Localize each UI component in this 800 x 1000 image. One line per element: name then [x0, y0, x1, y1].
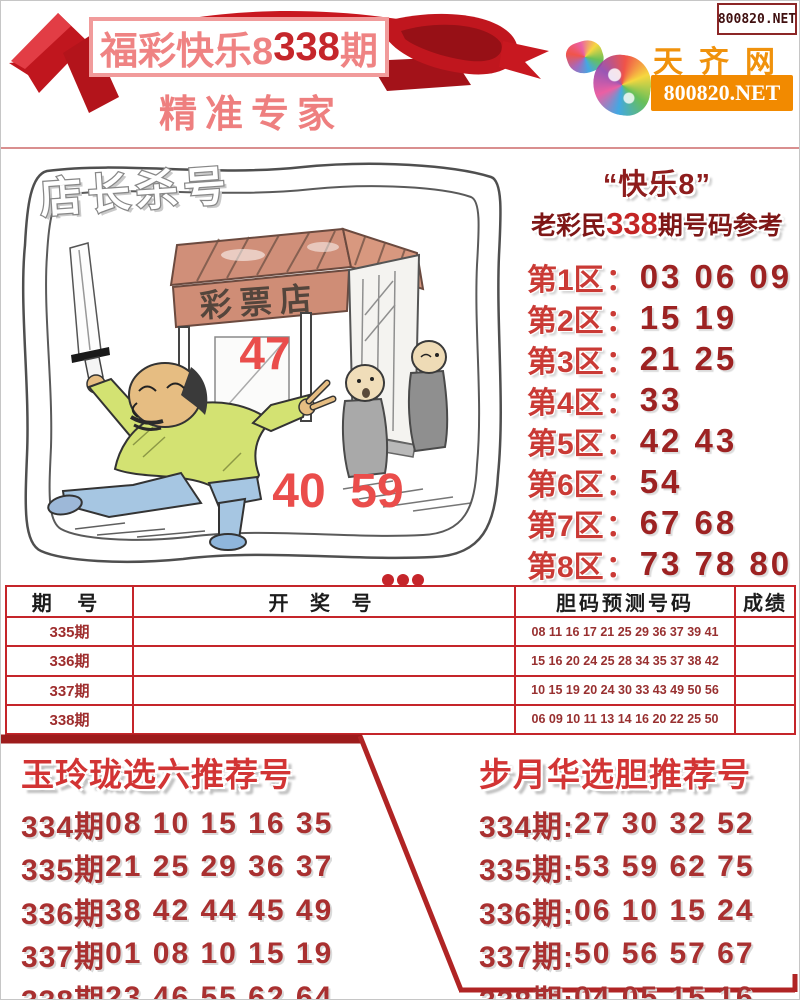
row-issue: 337期 [6, 676, 133, 705]
results-table: 期 号 开 奖 号 胆码预测号码 成绩 335期 08 11 16 17 21 … [5, 585, 796, 735]
corner-site-text: 800820.NET [718, 12, 796, 27]
recommend-row: 338期23 46 55 62 64 [21, 976, 381, 1000]
zone-colon: ： [606, 255, 636, 299]
table-row: 335期 08 11 16 17 21 25 29 36 37 39 41 [6, 617, 795, 646]
tianqi-site-url[interactable]: 800820.NET [651, 75, 793, 111]
zone-numbers: 67 68 [640, 504, 738, 542]
row-draw [133, 646, 515, 675]
recommend-right-section: 步月华选胆推荐号 334期:27 30 32 52 335期:53 59 62 … [479, 748, 799, 1000]
header-divider [1, 147, 800, 149]
row-score [735, 646, 795, 675]
recommend-issue: 337期: [479, 932, 574, 976]
zone-label: 第1区 [527, 255, 604, 299]
prediction-title-line2: 老彩民338期号码参考 [513, 206, 800, 242]
row-draw [133, 705, 515, 734]
table-row: 337期 10 15 19 20 24 30 33 43 49 50 56 [6, 676, 795, 705]
zone-label: 第5区 [527, 419, 604, 463]
cartoon-number-47: 47 [239, 327, 290, 379]
corner-site-badge[interactable]: 800820.NET [717, 3, 797, 35]
row-issue: 335期 [6, 617, 133, 646]
zone-row-5: 第5区：42 43 [527, 420, 800, 461]
zone-numbers: 54 [640, 463, 683, 501]
recommend-numbers: 06 10 15 24 [574, 894, 754, 928]
recommend-issue: 338期: [479, 976, 574, 1000]
recommend-numbers: 21 25 29 36 37 [105, 850, 333, 884]
recommend-left-title: 玉玲珑选六推荐号 [21, 748, 381, 796]
zone-numbers: 03 06 09 [640, 258, 792, 296]
cartoon-illustration: 店长杀号 店长杀号 彩票店 [13, 155, 509, 579]
red-dot [382, 574, 394, 586]
table-row: 338期 06 09 10 11 13 14 16 20 22 25 50 [6, 705, 795, 734]
recommend-issue: 334期: [479, 802, 574, 846]
recommend-row: 337期01 08 10 15 19 [21, 933, 381, 977]
row-predict: 06 09 10 11 13 14 16 20 22 25 50 [515, 705, 735, 734]
recommend-issue: 338期 [21, 976, 105, 1000]
zone-row-2: 第2区：15 19 [527, 297, 800, 338]
prediction-title-issue: 338 [606, 206, 658, 241]
recommend-issue: 336期: [479, 889, 574, 933]
lottery-promo-page: 800820.NET 福彩快乐8338期 精准专家 天齐网 800820.NET… [0, 0, 800, 1000]
red-dot [397, 574, 409, 586]
zone-label: 第4区 [527, 378, 604, 422]
recommend-row: 334期:27 30 32 52 [479, 802, 799, 846]
zone-row-3: 第3区：21 25 [527, 338, 800, 379]
header-draw: 开 奖 号 [133, 586, 515, 617]
recommend-numbers: 38 42 44 45 49 [105, 894, 333, 928]
zone-numbers: 73 78 80 [640, 545, 792, 583]
prediction-panel: “快乐8” 老彩民338期号码参考 第1区：03 06 09 第2区：15 19… [513, 161, 800, 577]
zone-numbers: 15 19 [640, 299, 738, 337]
recommend-numbers: 08 10 15 16 35 [105, 807, 333, 841]
zone-colon: ： [606, 460, 636, 504]
row-score [735, 676, 795, 705]
prediction-title-line1: “快乐8” [513, 161, 800, 203]
recommend-right-title: 步月华选胆推荐号 [479, 748, 799, 796]
row-draw [133, 617, 515, 646]
row-predict: 15 16 20 24 25 28 34 35 37 38 42 [515, 646, 735, 675]
results-header-row: 期 号 开 奖 号 胆码预测号码 成绩 [6, 586, 795, 617]
zone-colon: ： [606, 501, 636, 545]
zone-label: 第8区 [527, 542, 604, 586]
zone-row-8: 第8区：73 78 80 [527, 543, 800, 584]
recommend-numbers: 01 08 10 15 19 [105, 937, 333, 971]
zone-colon: ： [606, 378, 636, 422]
recommend-row: 334期08 10 15 16 35 [21, 802, 381, 846]
banner-title-issue: 338 [273, 25, 340, 70]
recommend-numbers: 53 59 62 75 [574, 850, 754, 884]
zone-colon: ： [606, 296, 636, 340]
recommend-row: 336期:06 10 15 24 [479, 889, 799, 933]
recommend-row: 336期38 42 44 45 49 [21, 889, 381, 933]
prediction-title-prefix: 老彩民 [531, 212, 606, 240]
header-issue: 期 号 [6, 586, 133, 617]
header-predict: 胆码预测号码 [515, 586, 735, 617]
row-predict: 08 11 16 17 21 25 29 36 37 39 41 [515, 617, 735, 646]
row-issue: 336期 [6, 646, 133, 675]
banner-title-suffix: 期 [340, 20, 378, 75]
recommend-issue: 335期 [21, 845, 105, 889]
banner-title-prefix: 福彩快乐8 [100, 20, 273, 75]
cartoon-number-40: 40 [272, 465, 325, 518]
recommend-row: 335期:53 59 62 75 [479, 846, 799, 890]
zone-colon: ： [606, 419, 636, 463]
recommend-numbers: 50 56 57 67 [574, 937, 754, 971]
recommend-row: 335期21 25 29 36 37 [21, 846, 381, 890]
row-issue: 338期 [6, 705, 133, 734]
row-predict: 10 15 19 20 24 30 33 43 49 50 56 [515, 676, 735, 705]
recommend-numbers: 04 05 15 16 [574, 981, 754, 1000]
zone-list: 第1区：03 06 09 第2区：15 19 第3区：21 25 第4区：33 … [513, 256, 800, 584]
zone-numbers: 33 [640, 381, 683, 419]
prediction-title-suffix: 期号码参考 [658, 212, 783, 240]
red-dots-decoration [382, 574, 424, 586]
zone-numbers: 21 25 [640, 340, 738, 378]
zone-numbers: 42 43 [640, 422, 738, 460]
zone-row-4: 第4区：33 [527, 379, 800, 420]
red-dot [412, 574, 424, 586]
row-score [735, 705, 795, 734]
row-draw [133, 676, 515, 705]
zone-colon: ： [606, 542, 636, 586]
recommend-numbers: 23 46 55 62 64 [105, 981, 333, 1000]
recommend-issue: 336期 [21, 889, 105, 933]
header-score: 成绩 [735, 586, 795, 617]
recommend-issue: 334期 [21, 802, 105, 846]
banner-title: 福彩快乐8338期 [89, 17, 389, 77]
recommend-numbers: 27 30 32 52 [574, 807, 754, 841]
zone-label: 第3区 [527, 337, 604, 381]
cartoon-number-59: 59 [350, 465, 403, 518]
zone-row-1: 第1区：03 06 09 [527, 256, 800, 297]
zone-label: 第6区 [527, 460, 604, 504]
recommend-issue: 337期 [21, 932, 105, 976]
recommend-row: 338期:04 05 15 16 [479, 976, 799, 1000]
zone-row-7: 第7区：67 68 [527, 502, 800, 543]
table-row: 336期 15 16 20 24 25 28 34 35 37 38 42 [6, 646, 795, 675]
banner-subtitle: 精准专家 [159, 83, 343, 138]
recommend-issue: 335期: [479, 845, 574, 889]
zone-colon: ： [606, 337, 636, 381]
recommend-row: 337期:50 56 57 67 [479, 933, 799, 977]
row-score [735, 617, 795, 646]
zone-label: 第2区 [527, 296, 604, 340]
recommend-left-section: 玉玲珑选六推荐号 334期08 10 15 16 35 335期21 25 29… [21, 748, 381, 1000]
zone-label: 第7区 [527, 501, 604, 545]
zone-row-6: 第6区：54 [527, 461, 800, 502]
